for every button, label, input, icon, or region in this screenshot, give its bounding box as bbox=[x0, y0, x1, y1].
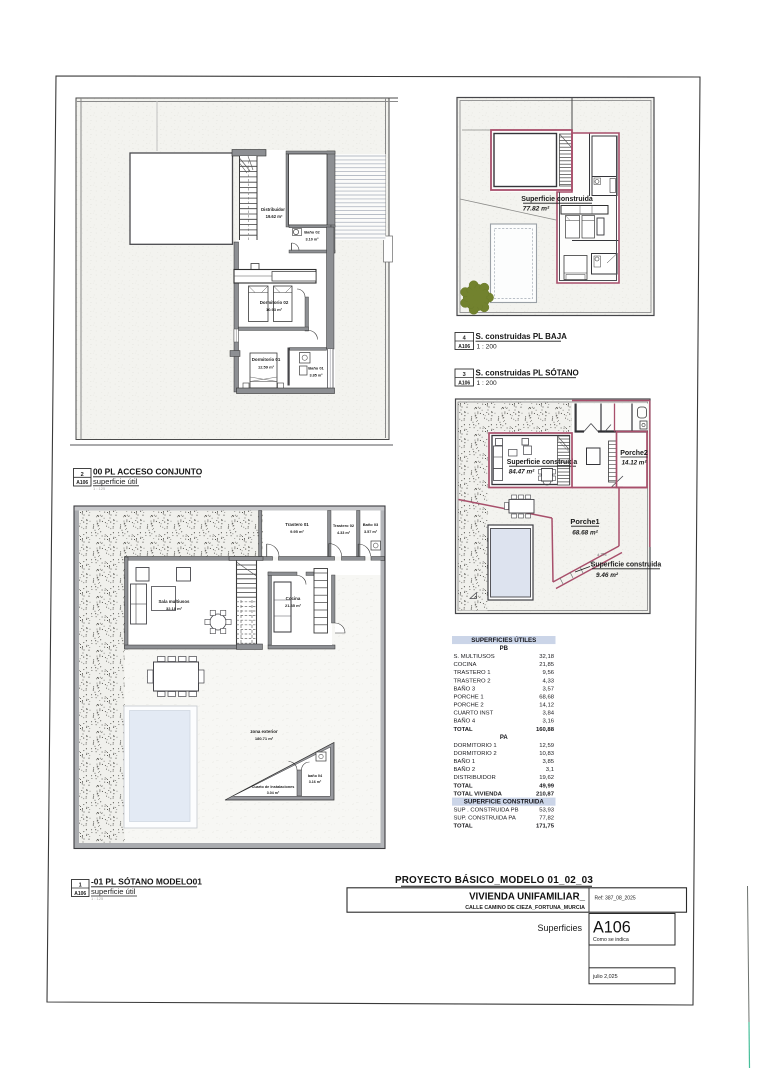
svg-text:3,1: 3,1 bbox=[546, 767, 554, 773]
svg-text:1 : 200: 1 : 200 bbox=[477, 380, 497, 387]
svg-text:3.04 m²: 3.04 m² bbox=[267, 791, 280, 795]
svg-text:CALLE CAMINO DE CIEZA_FORTUNA_: CALLE CAMINO DE CIEZA_FORTUNA_MURCIA bbox=[465, 905, 585, 911]
svg-text:210,87: 210,87 bbox=[536, 791, 555, 797]
svg-text:Cuarto de Instalaciones: Cuarto de Instalaciones bbox=[252, 785, 295, 789]
svg-text:3,16: 3,16 bbox=[543, 719, 555, 725]
svg-text:3.16 m²: 3.16 m² bbox=[309, 780, 322, 784]
svg-text:84.47 m²: 84.47 m² bbox=[509, 469, 535, 476]
svg-text:A106: A106 bbox=[593, 919, 631, 937]
svg-text:14,12: 14,12 bbox=[539, 703, 554, 709]
svg-text:3.85 m²: 3.85 m² bbox=[309, 374, 323, 378]
svg-text:DORMITORIO 2: DORMITORIO 2 bbox=[454, 751, 497, 757]
svg-text:SUP . CONSTRUIDA PB: SUP . CONSTRUIDA PB bbox=[454, 808, 519, 814]
svg-text:DORMITORIO 1: DORMITORIO 1 bbox=[454, 743, 497, 749]
svg-text:S. construidas PL BAJA: S. construidas PL BAJA bbox=[476, 332, 568, 341]
svg-text:Baño 02: Baño 02 bbox=[304, 230, 320, 235]
svg-text:180.71 m²: 180.71 m² bbox=[255, 736, 274, 741]
svg-text:Cocina: Cocina bbox=[286, 596, 301, 601]
svg-text:10,83: 10,83 bbox=[539, 751, 554, 757]
svg-text:Superficies: Superficies bbox=[537, 923, 582, 933]
svg-text:Porche1: Porche1 bbox=[570, 517, 599, 526]
svg-text:19,62: 19,62 bbox=[539, 775, 554, 781]
svg-text:14.12 m²: 14.12 m² bbox=[622, 460, 648, 467]
svg-text:± 7%: ± 7% bbox=[597, 552, 607, 557]
svg-text:TOTAL: TOTAL bbox=[454, 727, 473, 733]
svg-text:21.85 m²: 21.85 m² bbox=[285, 603, 302, 608]
svg-text:-01 PL SÓTANO MODELO01: -01 PL SÓTANO MODELO01 bbox=[91, 876, 202, 887]
svg-text:Trastero 01: Trastero 01 bbox=[285, 522, 309, 527]
svg-text:1 : 200: 1 : 200 bbox=[477, 344, 497, 351]
svg-text:BAÑO 1: BAÑO 1 bbox=[454, 758, 476, 765]
svg-text:19.62 m²: 19.62 m² bbox=[266, 214, 283, 219]
svg-text:SUP. CONSTRUIDA PA: SUP. CONSTRUIDA PA bbox=[454, 816, 516, 822]
svg-text:4.33 m²: 4.33 m² bbox=[337, 531, 351, 535]
svg-text:PB: PB bbox=[500, 646, 509, 652]
svg-text:1 : 125: 1 : 125 bbox=[93, 486, 106, 491]
svg-text:32,18: 32,18 bbox=[539, 654, 554, 660]
svg-text:Baño 01: Baño 01 bbox=[308, 366, 324, 371]
svg-text:Dormitorio 01: Dormitorio 01 bbox=[252, 357, 281, 362]
svg-text:S. construidas PL SÓTANO: S. construidas PL SÓTANO bbox=[476, 369, 579, 378]
svg-text:COCINA: COCINA bbox=[454, 662, 477, 668]
svg-text:PORCHE 1: PORCHE 1 bbox=[454, 694, 484, 700]
svg-text:zona exterior: zona exterior bbox=[250, 729, 278, 734]
svg-text:Superficie construida: Superficie construida bbox=[591, 562, 662, 569]
svg-text:BAÑO 3: BAÑO 3 bbox=[454, 685, 476, 692]
svg-text:Baño 03: Baño 03 bbox=[363, 522, 379, 527]
svg-text:1 : 125: 1 : 125 bbox=[91, 896, 104, 901]
svg-text:77,82: 77,82 bbox=[539, 816, 554, 822]
svg-text:TRASTERO 1: TRASTERO 1 bbox=[454, 670, 491, 676]
svg-text:VIVIENDA UNIFAMILIAR_: VIVIENDA UNIFAMILIAR_ bbox=[469, 892, 586, 903]
svg-text:3: 3 bbox=[463, 372, 466, 378]
svg-text:Porche2: Porche2 bbox=[620, 450, 648, 457]
svg-text:9,56: 9,56 bbox=[543, 670, 555, 676]
svg-text:PORCHE 2: PORCHE 2 bbox=[454, 703, 484, 709]
svg-text:A106: A106 bbox=[458, 381, 470, 387]
svg-text:PA: PA bbox=[500, 735, 509, 741]
svg-text:A106: A106 bbox=[76, 480, 88, 486]
svg-text:Superficie construida: Superficie construida bbox=[521, 196, 593, 203]
svg-text:Sala multiusos: Sala multiusos bbox=[159, 599, 191, 604]
svg-text:baño 04: baño 04 bbox=[308, 774, 323, 778]
svg-text:68.68 m²: 68.68 m² bbox=[572, 530, 598, 537]
svg-text:A106: A106 bbox=[458, 344, 470, 350]
svg-text:77.82 m²: 77.82 m² bbox=[523, 206, 550, 213]
svg-text:CUARTO INST: CUARTO INST bbox=[454, 711, 494, 717]
svg-text:Superficie construida: Superficie construida bbox=[507, 459, 578, 466]
svg-text:Distribuidor: Distribuidor bbox=[261, 207, 285, 212]
svg-text:PROYECTO BÁSICO_MODELO 01_02_0: PROYECTO BÁSICO_MODELO 01_02_03 bbox=[395, 875, 593, 886]
svg-text:superficie útil: superficie útil bbox=[91, 887, 136, 896]
svg-text:Trastero 02: Trastero 02 bbox=[333, 523, 355, 528]
svg-text:12,59: 12,59 bbox=[539, 743, 554, 749]
svg-text:171,75: 171,75 bbox=[536, 824, 555, 830]
svg-text:10.93 m²: 10.93 m² bbox=[266, 307, 283, 312]
svg-text:32.18 m²: 32.18 m² bbox=[166, 606, 183, 611]
svg-text:TRASTERO 2: TRASTERO 2 bbox=[454, 678, 491, 684]
svg-text:TOTAL VIVIENDA: TOTAL VIVIENDA bbox=[454, 791, 503, 797]
svg-text:49,99: 49,99 bbox=[539, 783, 554, 789]
svg-text:3,57: 3,57 bbox=[543, 686, 554, 692]
svg-text:BAÑO 2: BAÑO 2 bbox=[454, 766, 476, 773]
svg-text:Dormitorio 02: Dormitorio 02 bbox=[260, 300, 289, 305]
svg-text:2: 2 bbox=[81, 472, 84, 478]
svg-text:SUPERFICIES ÚTILES: SUPERFICIES ÚTILES bbox=[471, 637, 536, 644]
svg-text:Como se indica: Como se indica bbox=[593, 937, 629, 943]
svg-text:160,88: 160,88 bbox=[536, 727, 555, 733]
svg-text:68,68: 68,68 bbox=[539, 694, 554, 700]
svg-text:S. MULTIUSOS: S. MULTIUSOS bbox=[454, 654, 495, 660]
svg-text:Ref: 387_08_2025: Ref: 387_08_2025 bbox=[595, 896, 636, 902]
svg-text:TOTAL: TOTAL bbox=[454, 783, 473, 789]
svg-text:superficie útil: superficie útil bbox=[93, 477, 138, 486]
svg-text:3,84: 3,84 bbox=[543, 711, 555, 717]
svg-text:SUPERFICIE CONSTRUIDA: SUPERFICIE CONSTRUIDA bbox=[464, 798, 545, 805]
svg-text:3.10 m²: 3.10 m² bbox=[305, 238, 319, 242]
svg-text:1: 1 bbox=[79, 883, 82, 889]
svg-text:DISTRIBUIDOR: DISTRIBUIDOR bbox=[454, 775, 496, 781]
svg-text:3,85: 3,85 bbox=[543, 759, 555, 765]
svg-text:julio 2,025: julio 2,025 bbox=[592, 974, 618, 980]
svg-text:9.46 m²: 9.46 m² bbox=[596, 572, 619, 579]
svg-text:A106: A106 bbox=[74, 891, 86, 897]
svg-text:9.95 m²: 9.95 m² bbox=[290, 529, 304, 534]
svg-text:4,33: 4,33 bbox=[543, 678, 555, 684]
svg-text:3.57 m²: 3.57 m² bbox=[364, 530, 378, 534]
svg-text:00 PL ACCESO CONJUNTO: 00 PL ACCESO CONJUNTO bbox=[93, 467, 203, 477]
svg-text:53,93: 53,93 bbox=[539, 808, 554, 814]
svg-text:TOTAL: TOTAL bbox=[454, 824, 473, 830]
svg-text:12.59 m²: 12.59 m² bbox=[258, 365, 275, 370]
svg-text:BAÑO 4: BAÑO 4 bbox=[454, 718, 476, 725]
svg-text:21,85: 21,85 bbox=[539, 662, 554, 668]
